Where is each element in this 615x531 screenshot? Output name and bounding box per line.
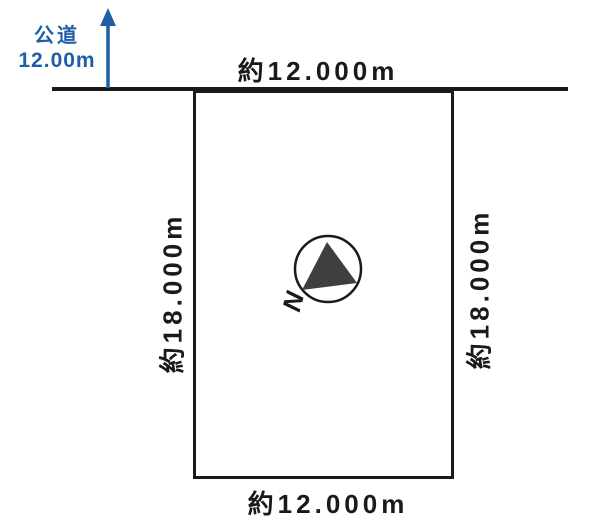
compass: N: [283, 224, 375, 316]
land-plot-diagram: 公道 12.00m 約12.000m 約12.000m 約18.000m 約18…: [0, 0, 615, 531]
road-label: 公道 12.00m: [6, 24, 108, 73]
dimension-label-top: 約12.000m: [238, 51, 399, 88]
road-name-label: 公道: [6, 24, 108, 48]
dimension-label-left: 約18.000m: [153, 213, 190, 374]
dimension-label-right: 約18.000m: [460, 209, 497, 370]
road-width-label: 12.00m: [6, 48, 108, 73]
dimension-label-bottom: 約12.000m: [248, 484, 409, 521]
